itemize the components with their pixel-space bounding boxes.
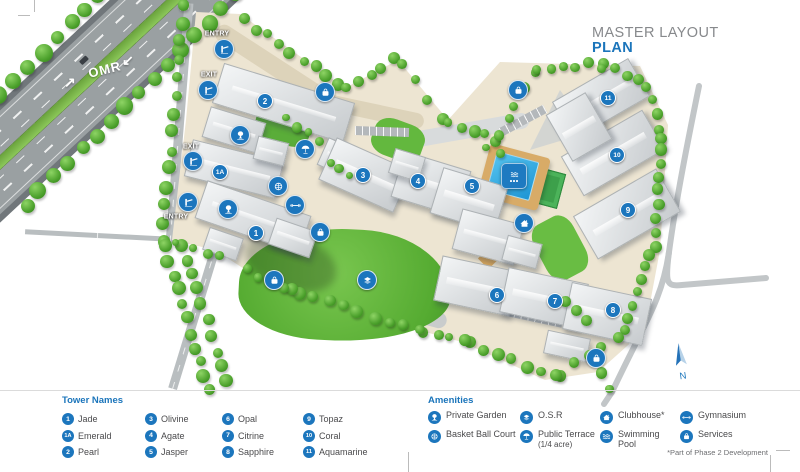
tree [496, 149, 504, 157]
public-terrace-icon [520, 430, 533, 443]
legend-amenity-item: Public Terrace(1/4 acre) [520, 430, 600, 450]
public-terrace-icon [295, 139, 315, 159]
tree [506, 353, 516, 363]
tree [334, 164, 343, 173]
tree [581, 315, 591, 325]
tower-name: Emerald [78, 431, 112, 441]
tree [369, 312, 382, 325]
private-garden-icon [230, 125, 250, 145]
tree [173, 34, 185, 46]
tree [305, 128, 312, 135]
tree [239, 13, 250, 24]
tree [213, 348, 223, 358]
amenity-name: Services [698, 430, 733, 440]
tree [571, 305, 582, 316]
tree [469, 125, 481, 137]
legend-tower-item: 9Topaz [303, 411, 368, 428]
tower-name: Pearl [78, 447, 99, 457]
tower-marker-11: 11 [600, 90, 616, 106]
legend-amenity-item: Gymnasium [680, 411, 746, 424]
tree [640, 261, 649, 270]
tree [559, 62, 568, 71]
tree [613, 332, 624, 343]
tower-marker-4: 4 [410, 173, 426, 189]
tree [177, 299, 188, 310]
tree [652, 183, 663, 194]
legend-tower-item: 8Sapphire [222, 444, 303, 461]
traffic-arrow-up-icon: ↗ [64, 74, 76, 91]
tree [165, 124, 178, 137]
tower-number-badge: 6 [222, 413, 234, 425]
tree [194, 297, 207, 310]
tree [172, 281, 186, 295]
tree [178, 0, 189, 11]
tree [190, 281, 203, 294]
legend-tower-item: 1AEmerald [62, 428, 145, 445]
tree [167, 147, 177, 157]
tree [21, 199, 35, 213]
tower-name: Opal [238, 414, 257, 424]
tree [161, 58, 175, 72]
tower-number-badge: 11 [303, 446, 315, 458]
tree [643, 249, 655, 261]
amenity-name: Gymnasium [698, 411, 746, 421]
tree [182, 255, 193, 266]
gate-label: EXIT [183, 144, 199, 151]
amenities-title: Amenities [428, 395, 746, 406]
tower-number-badge: 8 [222, 446, 234, 458]
amenities-list: Private GardenBasket Ball CourtO.S.RPubl… [428, 411, 746, 449]
tree [434, 330, 444, 340]
tree [532, 65, 541, 74]
tree [162, 160, 176, 174]
tree [653, 199, 665, 211]
gate-icon [214, 39, 234, 59]
tower-marker-6: 6 [489, 287, 505, 303]
tower-marker-10: 10 [609, 147, 625, 163]
tree [550, 369, 562, 381]
crop-mark [408, 452, 409, 472]
tower-marker-9: 9 [620, 202, 636, 218]
tower-number-badge: 2 [62, 446, 74, 458]
title-line2: PLAN [592, 41, 719, 56]
legend-tower-item: 7Citrine [222, 428, 303, 445]
tree [77, 3, 91, 17]
tree [158, 198, 170, 210]
legend: Tower Names 1Jade1AEmerald2Pearl3Olivine… [0, 390, 800, 472]
services-icon [680, 430, 693, 443]
north-compass: N [661, 340, 700, 384]
tree [445, 333, 453, 341]
crop-mark [770, 455, 771, 472]
tree [116, 97, 134, 115]
crop-mark [34, 0, 35, 12]
osr-icon [357, 270, 377, 290]
services-icon [315, 82, 335, 102]
tower-marker-1: 1 [248, 225, 264, 241]
service-road [25, 229, 170, 242]
tree [622, 313, 633, 324]
tree [203, 314, 215, 326]
amenity-name: Public Terrace(1/4 acre) [538, 430, 595, 450]
tree [655, 143, 667, 155]
tree [189, 244, 197, 252]
tree [353, 76, 364, 87]
phase-footnote: *Part of Phase 2 Development [667, 448, 768, 457]
tree [29, 182, 46, 199]
tree [457, 123, 467, 133]
legend-tower-item: 5Jasper [145, 444, 222, 461]
tree [282, 114, 290, 122]
tree [172, 72, 182, 82]
tree [283, 47, 295, 59]
tower-name: Coral [319, 431, 341, 441]
tree [341, 83, 351, 93]
tower-name: Aquamarine [319, 447, 368, 457]
services-icon [310, 222, 330, 242]
traffic-arrow-down-icon: ↙ [122, 52, 134, 69]
tree [176, 17, 189, 30]
legend-tower-item: 1Jade [62, 411, 145, 428]
tree [263, 29, 272, 38]
legend-tower-item: 3Olivine [145, 411, 222, 428]
tree [478, 345, 489, 356]
gymnasium-icon [285, 195, 305, 215]
tower-marker-2: 2 [257, 93, 273, 109]
tree [148, 72, 162, 86]
tree [219, 374, 232, 387]
tower-name: Citrine [238, 431, 264, 441]
tower-name: Topaz [319, 414, 343, 424]
legend-amenity-item: Clubhouse* [600, 411, 680, 424]
services-icon [508, 80, 528, 100]
tree [159, 181, 173, 195]
services-icon [586, 348, 606, 368]
tower-number-badge: 7 [222, 430, 234, 442]
services-icon [264, 270, 284, 290]
tree [189, 343, 200, 354]
tower-names-title: Tower Names [62, 395, 368, 406]
tree [350, 305, 363, 318]
tower-marker-5: 5 [464, 178, 480, 194]
tree [459, 334, 470, 345]
tree [104, 114, 119, 129]
tree [185, 329, 197, 341]
tree [324, 295, 336, 307]
amenity-name: Private Garden [446, 411, 507, 421]
gymnasium-icon [680, 411, 693, 424]
gate-label: ENTRY [205, 31, 229, 38]
tree [569, 357, 579, 367]
tree [622, 71, 633, 82]
tree [480, 129, 489, 138]
tree [492, 348, 505, 361]
legend-tower-item: 11Aquamarine [303, 444, 368, 461]
tower-name: Jade [78, 414, 98, 424]
gate-icon [198, 80, 218, 100]
osr-icon [520, 411, 533, 424]
private-garden-icon [428, 411, 441, 424]
basket-ball-court-icon [268, 176, 288, 196]
tree [90, 129, 106, 145]
tower-name: Sapphire [238, 447, 274, 457]
legend-tower-item: 6Opal [222, 411, 303, 428]
legend-amenity-item: Basket Ball Court [428, 430, 520, 443]
tree [292, 122, 303, 133]
tree [215, 251, 224, 260]
tree [251, 25, 262, 36]
crop-mark [776, 450, 790, 451]
tree [570, 63, 579, 72]
north-label: N [665, 369, 700, 385]
master-layout-plan: ↗ OMR ↙ 11A234567891011ENTRYEXITEXITENTR… [0, 0, 800, 472]
tree [411, 75, 420, 84]
tree [77, 141, 90, 154]
tower-name: Jasper [161, 447, 188, 457]
tree [444, 118, 452, 126]
parking [355, 126, 409, 137]
tower-number-badge: 5 [145, 446, 157, 458]
north-arrow-icon [665, 340, 694, 369]
gate-label: EXIT [201, 72, 217, 79]
tree [536, 367, 546, 377]
tree [5, 73, 21, 89]
tree [181, 311, 193, 323]
tree [215, 359, 228, 372]
tower-marker-7: 7 [547, 293, 563, 309]
amenity-name: Swimming Pool [618, 430, 680, 450]
gate-label: ENTRY [164, 214, 188, 221]
legend-tower-item: 2Pearl [62, 444, 145, 461]
tree [319, 69, 332, 82]
tower-name: Olivine [161, 414, 189, 424]
tree [203, 249, 213, 259]
legend-amenity-item: Swimming Pool [600, 430, 680, 450]
swimming-pool-badge [501, 163, 527, 189]
tree [159, 239, 171, 251]
tree [174, 55, 185, 66]
tree [202, 15, 219, 32]
tree [160, 255, 174, 269]
tree [385, 318, 395, 328]
tree [132, 86, 145, 99]
legend-tower-item: 10Coral [303, 428, 368, 445]
tower-names-legend: Tower Names 1Jade1AEmerald2Pearl3Olivine… [62, 395, 368, 461]
legend-amenity-item: O.S.R [520, 411, 600, 424]
tree [46, 168, 61, 183]
tree [398, 319, 409, 330]
tree [397, 59, 407, 69]
tree [547, 64, 557, 74]
tree [196, 356, 206, 366]
gate-icon [178, 192, 198, 212]
tree [307, 291, 318, 302]
tree [35, 44, 53, 62]
tree [596, 367, 608, 379]
tree [415, 325, 424, 334]
tower-name: Agate [161, 431, 185, 441]
amenity-name: Clubhouse* [618, 411, 665, 421]
legend-amenity-item: Private Garden [428, 411, 520, 424]
tree [196, 369, 210, 383]
tree [254, 273, 263, 282]
private-garden-icon [218, 199, 238, 219]
tree [653, 172, 664, 183]
tree [641, 82, 651, 92]
tree [597, 64, 606, 73]
tree [205, 330, 217, 342]
tree [186, 268, 197, 279]
tower-marker-3: 3 [355, 167, 371, 183]
clubhouse-icon [514, 213, 534, 233]
tower-marker-1a: 1A [212, 164, 228, 180]
tree [521, 361, 534, 374]
tree [90, 0, 106, 3]
page-title: MASTER LAYOUT PLAN [592, 26, 719, 56]
amenity-sub: (1/4 acre) [538, 440, 572, 449]
tower-number-badge: 3 [145, 413, 157, 425]
tree [60, 156, 75, 171]
tower-number-badge: 1 [62, 413, 74, 425]
clubhouse-icon [600, 411, 613, 424]
tower-marker-8: 8 [605, 302, 621, 318]
swimming-pool-icon [600, 430, 613, 443]
title-line1: MASTER LAYOUT [592, 26, 719, 41]
tower-number-badge: 10 [303, 430, 315, 442]
amenity-name: O.S.R [538, 411, 563, 421]
tower-number-badge: 9 [303, 413, 315, 425]
tree [583, 57, 594, 68]
legend-amenity-item: Services [680, 430, 746, 443]
tree [494, 130, 504, 140]
amenity-name: Basket Ball Court [446, 430, 516, 440]
tree [65, 14, 80, 29]
tree [656, 159, 666, 169]
tower-names-list: 1Jade1AEmerald2Pearl3Olivine4Agate5Jaspe… [62, 411, 368, 461]
tower-number-badge: 4 [145, 430, 157, 442]
tree [655, 133, 667, 145]
gate-icon [183, 151, 203, 171]
tower-number-badge: 1A [62, 430, 74, 442]
crop-mark [18, 15, 30, 16]
amenities-legend: Amenities Private GardenBasket Ball Cour… [428, 395, 746, 449]
legend-tower-item: 4Agate [145, 428, 222, 445]
basket-ball-court-icon [428, 430, 441, 443]
